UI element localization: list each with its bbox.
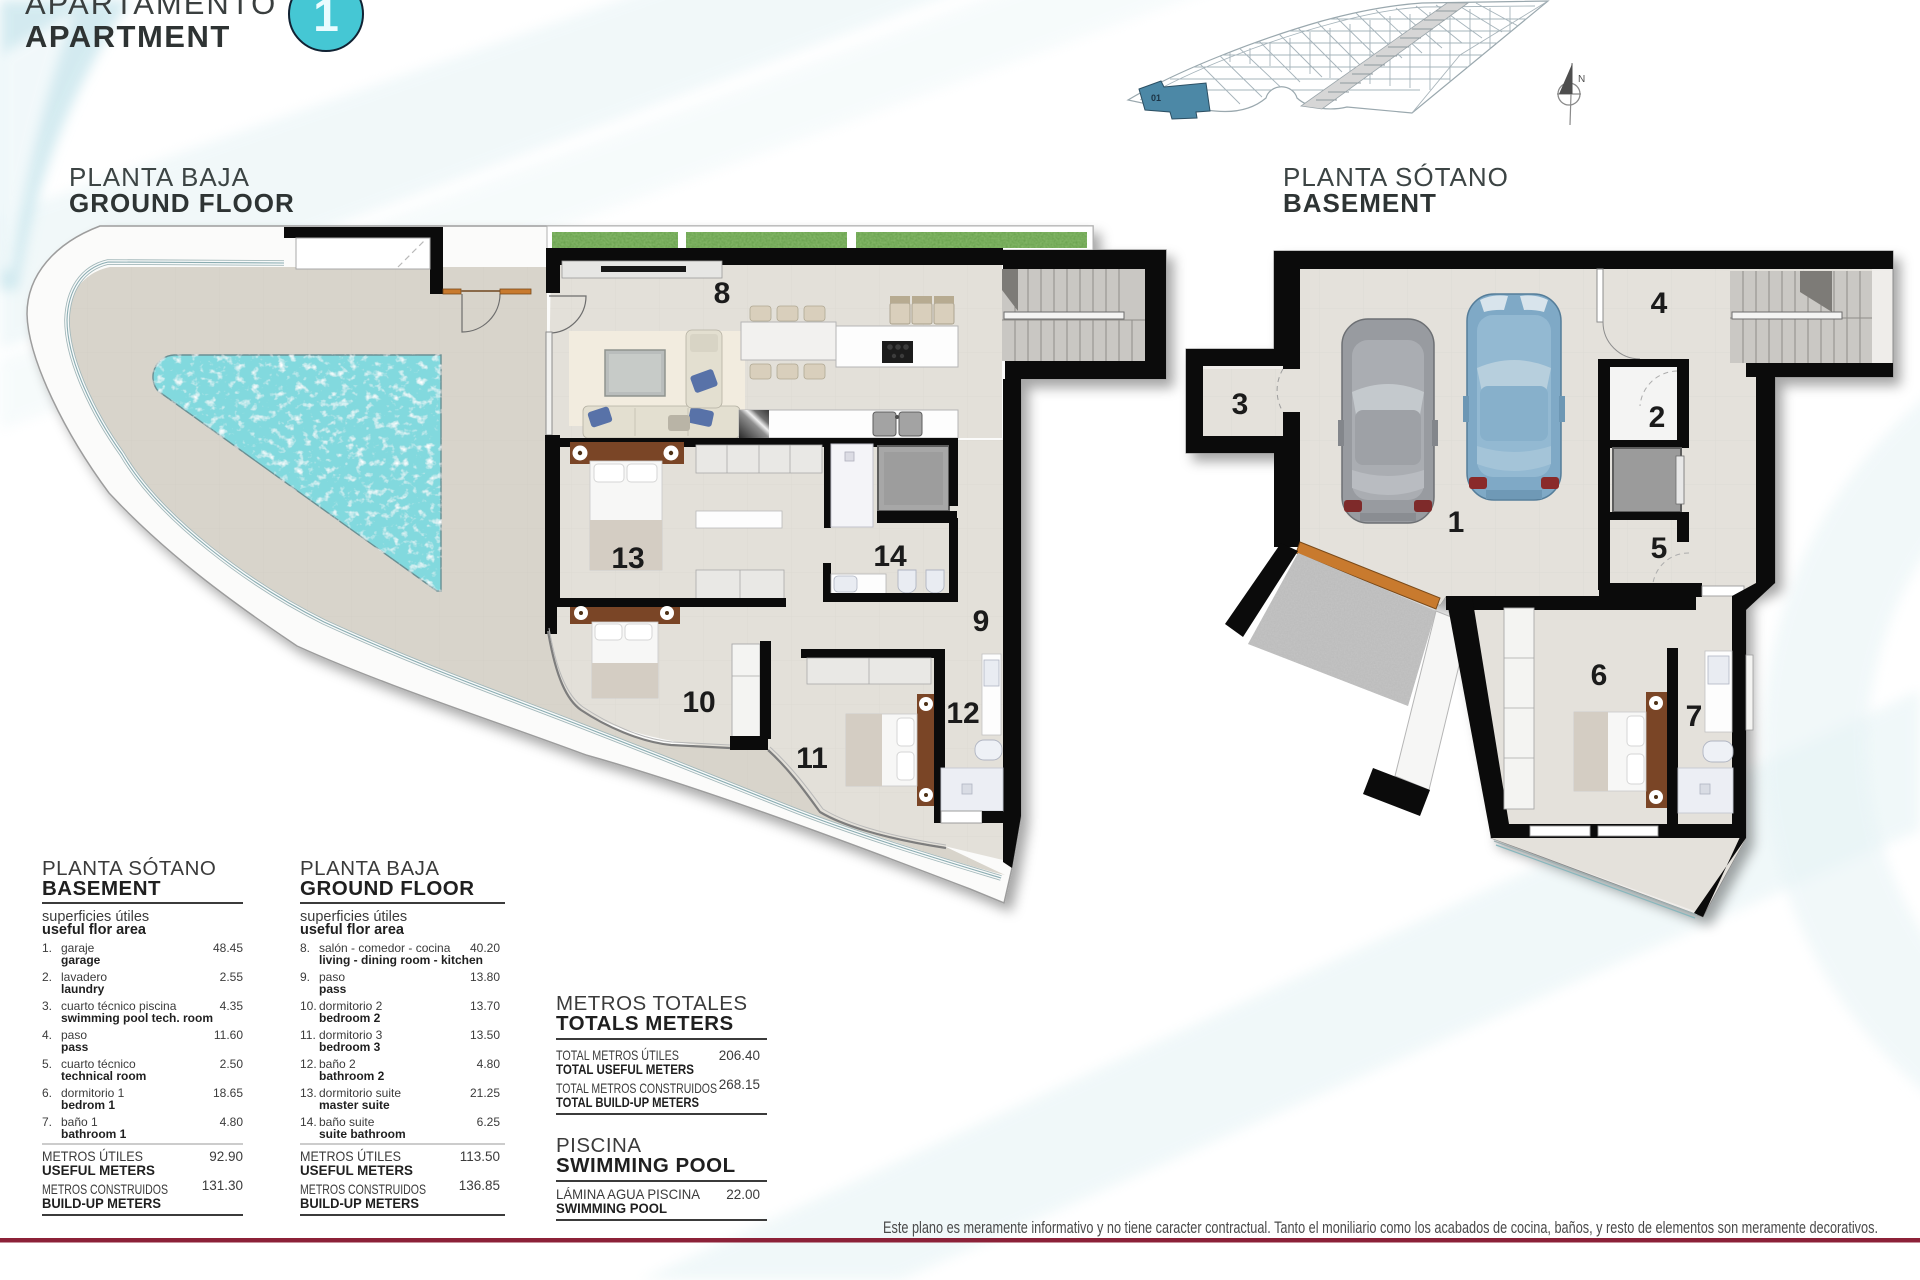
svg-text:18.65: 18.65 bbox=[213, 1086, 243, 1100]
svg-text:22.00: 22.00 bbox=[726, 1187, 760, 1202]
svg-text:N: N bbox=[1578, 74, 1585, 85]
svg-text:2.55: 2.55 bbox=[220, 970, 244, 984]
svg-text:2.50: 2.50 bbox=[220, 1057, 244, 1071]
svg-text:useful flor area: useful flor area bbox=[300, 922, 405, 938]
svg-text:268.15: 268.15 bbox=[719, 1077, 760, 1092]
svg-text:swimming pool tech. room: swimming pool tech. room bbox=[61, 1011, 213, 1025]
svg-text:GROUND FLOOR: GROUND FLOOR bbox=[69, 188, 295, 218]
svg-text:10: 10 bbox=[682, 686, 715, 719]
svg-text:6.: 6. bbox=[42, 1086, 52, 1100]
svg-text:bathroom 1: bathroom 1 bbox=[61, 1127, 127, 1141]
svg-text:14.: 14. bbox=[300, 1115, 317, 1129]
svg-text:21.25: 21.25 bbox=[470, 1086, 500, 1100]
svg-text:01: 01 bbox=[1151, 93, 1161, 103]
svg-text:11.60: 11.60 bbox=[214, 1028, 243, 1042]
svg-text:pass: pass bbox=[61, 1040, 89, 1054]
svg-text:48.45: 48.45 bbox=[213, 941, 243, 955]
svg-text:4.35: 4.35 bbox=[220, 999, 244, 1013]
svg-text:13.80: 13.80 bbox=[470, 970, 500, 984]
svg-text:9: 9 bbox=[973, 605, 990, 638]
svg-text:9.: 9. bbox=[300, 970, 310, 984]
svg-text:13: 13 bbox=[611, 542, 644, 575]
svg-text:6.25: 6.25 bbox=[477, 1115, 501, 1129]
svg-text:pass: pass bbox=[319, 982, 347, 996]
svg-text:8: 8 bbox=[714, 277, 731, 310]
svg-text:4: 4 bbox=[1651, 287, 1668, 320]
svg-text:BUILD-UP METERS: BUILD-UP METERS bbox=[300, 1195, 419, 1211]
svg-text:13.70: 13.70 bbox=[470, 999, 500, 1013]
svg-text:useful flor area: useful flor area bbox=[42, 922, 147, 938]
svg-text:8.: 8. bbox=[300, 941, 310, 955]
svg-text:7: 7 bbox=[1686, 700, 1703, 733]
svg-text:136.85: 136.85 bbox=[459, 1178, 500, 1193]
svg-text:7.: 7. bbox=[42, 1115, 52, 1129]
svg-text:SWIMMING POOL: SWIMMING POOL bbox=[556, 1200, 667, 1216]
svg-text:APARTAMENTO: APARTAMENTO bbox=[25, 0, 277, 21]
svg-text:131.30: 131.30 bbox=[202, 1178, 243, 1193]
svg-text:bedroom 3: bedroom 3 bbox=[319, 1040, 381, 1054]
svg-text:2.: 2. bbox=[42, 970, 52, 984]
svg-text:3: 3 bbox=[1232, 388, 1249, 421]
svg-text:11.: 11. bbox=[300, 1028, 316, 1042]
svg-text:BASEMENT: BASEMENT bbox=[42, 877, 161, 900]
svg-text:6: 6 bbox=[1591, 659, 1608, 692]
svg-text:laundry: laundry bbox=[61, 982, 105, 996]
svg-text:4.: 4. bbox=[42, 1028, 52, 1042]
svg-text:TOTAL BUILD-UP METERS: TOTAL BUILD-UP METERS bbox=[556, 1094, 699, 1110]
svg-text:92.90: 92.90 bbox=[209, 1149, 243, 1164]
svg-text:13.50: 13.50 bbox=[470, 1028, 500, 1042]
svg-text:5.: 5. bbox=[42, 1057, 52, 1071]
svg-text:APARTMENT: APARTMENT bbox=[25, 19, 231, 54]
svg-text:BASEMENT: BASEMENT bbox=[1283, 188, 1437, 218]
svg-text:11: 11 bbox=[796, 742, 828, 775]
svg-text:technical room: technical room bbox=[61, 1069, 146, 1083]
svg-text:bedroom 2: bedroom 2 bbox=[319, 1011, 381, 1025]
svg-text:living - dining room - kitchen: living - dining room - kitchen bbox=[319, 953, 483, 967]
svg-text:master suite: master suite bbox=[319, 1098, 390, 1112]
svg-text:14: 14 bbox=[873, 540, 907, 573]
svg-text:GROUND FLOOR: GROUND FLOOR bbox=[300, 877, 475, 900]
svg-text:BUILD-UP METERS: BUILD-UP METERS bbox=[42, 1195, 161, 1211]
svg-text:suite bathroom: suite bathroom bbox=[319, 1127, 406, 1141]
svg-text:1.: 1. bbox=[42, 941, 52, 955]
svg-text:garage: garage bbox=[61, 953, 101, 967]
svg-text:2: 2 bbox=[1649, 401, 1666, 434]
svg-text:4.80: 4.80 bbox=[220, 1115, 244, 1129]
svg-text:USEFUL METERS: USEFUL METERS bbox=[300, 1162, 413, 1178]
svg-text:TOTALS METERS: TOTALS METERS bbox=[556, 1012, 734, 1035]
svg-text:3.: 3. bbox=[42, 999, 52, 1013]
svg-text:12.: 12. bbox=[300, 1057, 317, 1071]
svg-text:1: 1 bbox=[1448, 506, 1465, 539]
svg-text:1: 1 bbox=[313, 0, 339, 41]
svg-text:SWIMMING POOL: SWIMMING POOL bbox=[556, 1154, 736, 1177]
svg-text:USEFUL METERS: USEFUL METERS bbox=[42, 1162, 155, 1178]
svg-text:bedrom 1: bedrom 1 bbox=[61, 1098, 115, 1112]
svg-text:5: 5 bbox=[1651, 532, 1668, 565]
svg-text:4.80: 4.80 bbox=[477, 1057, 501, 1071]
svg-text:12: 12 bbox=[946, 697, 979, 730]
svg-text:bathroom 2: bathroom 2 bbox=[319, 1069, 385, 1083]
svg-text:TOTAL USEFUL METERS: TOTAL USEFUL METERS bbox=[556, 1061, 694, 1077]
svg-text:Este plano es meramente inform: Este plano es meramente informativo y no… bbox=[883, 1218, 1878, 1237]
svg-text:10.: 10. bbox=[300, 999, 317, 1013]
svg-text:206.40: 206.40 bbox=[719, 1048, 760, 1063]
svg-text:13.: 13. bbox=[300, 1086, 317, 1100]
svg-text:113.50: 113.50 bbox=[460, 1149, 500, 1164]
